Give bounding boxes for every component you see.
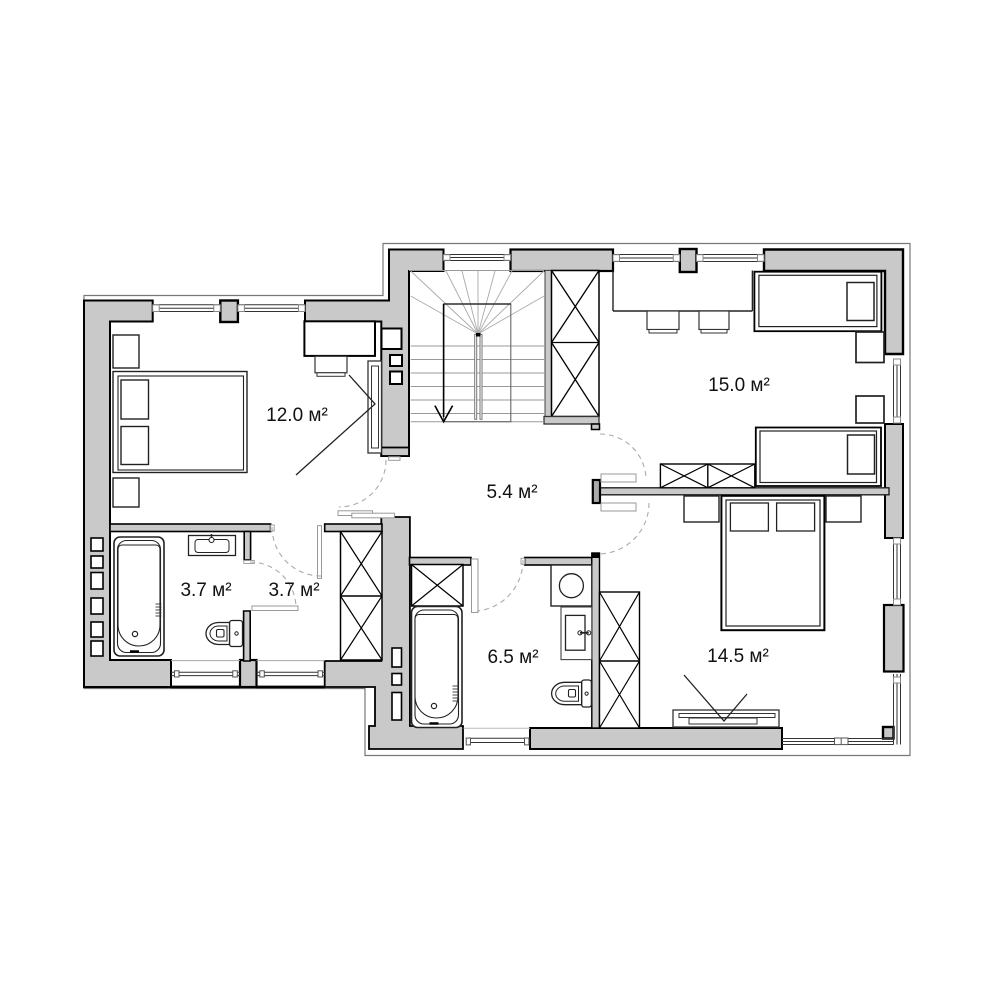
svg-text:3.7 м²: 3.7 м² [268, 580, 319, 601]
svg-text:12.0 м²: 12.0 м² [266, 405, 328, 426]
svg-text:14.5 м²: 14.5 м² [707, 646, 769, 667]
svg-text:3.7 м²: 3.7 м² [180, 580, 231, 601]
svg-text:5.4 м²: 5.4 м² [486, 482, 537, 503]
svg-text:6.5 м²: 6.5 м² [487, 647, 538, 668]
svg-text:15.0 м²: 15.0 м² [708, 375, 770, 396]
